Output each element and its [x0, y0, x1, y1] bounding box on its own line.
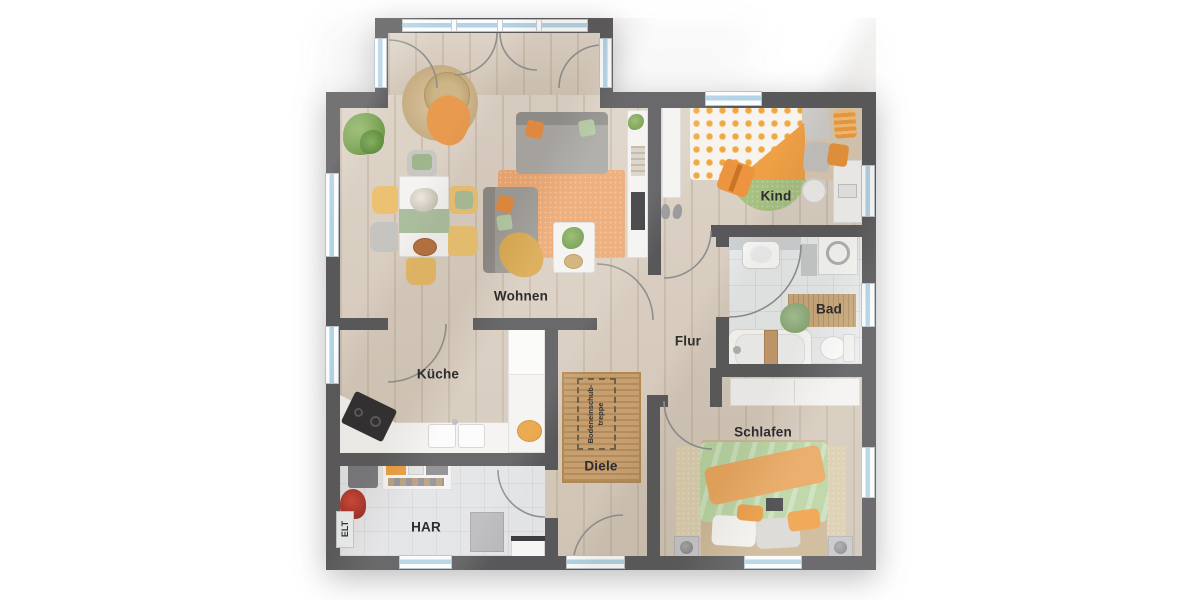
room-label-kind: Kind: [761, 189, 792, 204]
label-attic-stairs-line1: Bodeneinschub-: [586, 385, 596, 444]
window-wohnen-left: [325, 173, 339, 257]
door-arc-bay-right: [559, 45, 602, 88]
room-label-diele: Diele: [584, 459, 617, 474]
room-label-wohnen: Wohnen: [494, 289, 548, 304]
window-bay-right: [599, 38, 612, 88]
door-arc-bad: [729, 245, 801, 317]
room-label-schlafen: Schlafen: [734, 425, 792, 440]
window-mullion: [497, 20, 503, 31]
window-kind-right: [861, 165, 875, 217]
window-schlafen-bottom: [744, 555, 802, 569]
door-arc-har: [498, 470, 545, 517]
room-label-kueche: Küche: [417, 367, 459, 382]
door-arc-bay-left: [389, 40, 437, 88]
window-har-bottom: [399, 555, 452, 569]
door-arc-wohnen-flur: [597, 264, 653, 320]
room-label-elt: ELT: [340, 521, 350, 537]
label-attic-stairs: Bodeneinschub- treppe: [586, 385, 606, 444]
door-arc-schlafen: [664, 401, 712, 449]
window-kind-top: [705, 91, 762, 106]
window-bay-left: [374, 38, 387, 88]
door-arc-bay-center-left: [455, 33, 497, 75]
window-mullion: [536, 20, 542, 31]
door-arc-kind: [664, 231, 711, 278]
room-label-har: HAR: [411, 520, 441, 535]
room-label-flur: Flur: [675, 334, 701, 349]
door-arcs: [0, 0, 1200, 600]
window-bay-band: [402, 19, 588, 32]
floorplan-canvas: Wohnen Küche Kind Bad Flur Schlafen Diel…: [0, 0, 1200, 600]
window-bad-right: [861, 283, 875, 327]
label-attic-stairs-line2: treppe: [596, 385, 606, 444]
room-label-bad: Bad: [816, 302, 842, 317]
floorplan: Wohnen Küche Kind Bad Flur Schlafen Diel…: [0, 0, 1200, 600]
front-door-threshold: [566, 555, 625, 569]
window-kueche-left: [325, 326, 339, 384]
window-schlafen-right: [861, 447, 875, 498]
door-arc-bay-center-right: [500, 33, 537, 70]
window-mullion: [451, 20, 457, 31]
